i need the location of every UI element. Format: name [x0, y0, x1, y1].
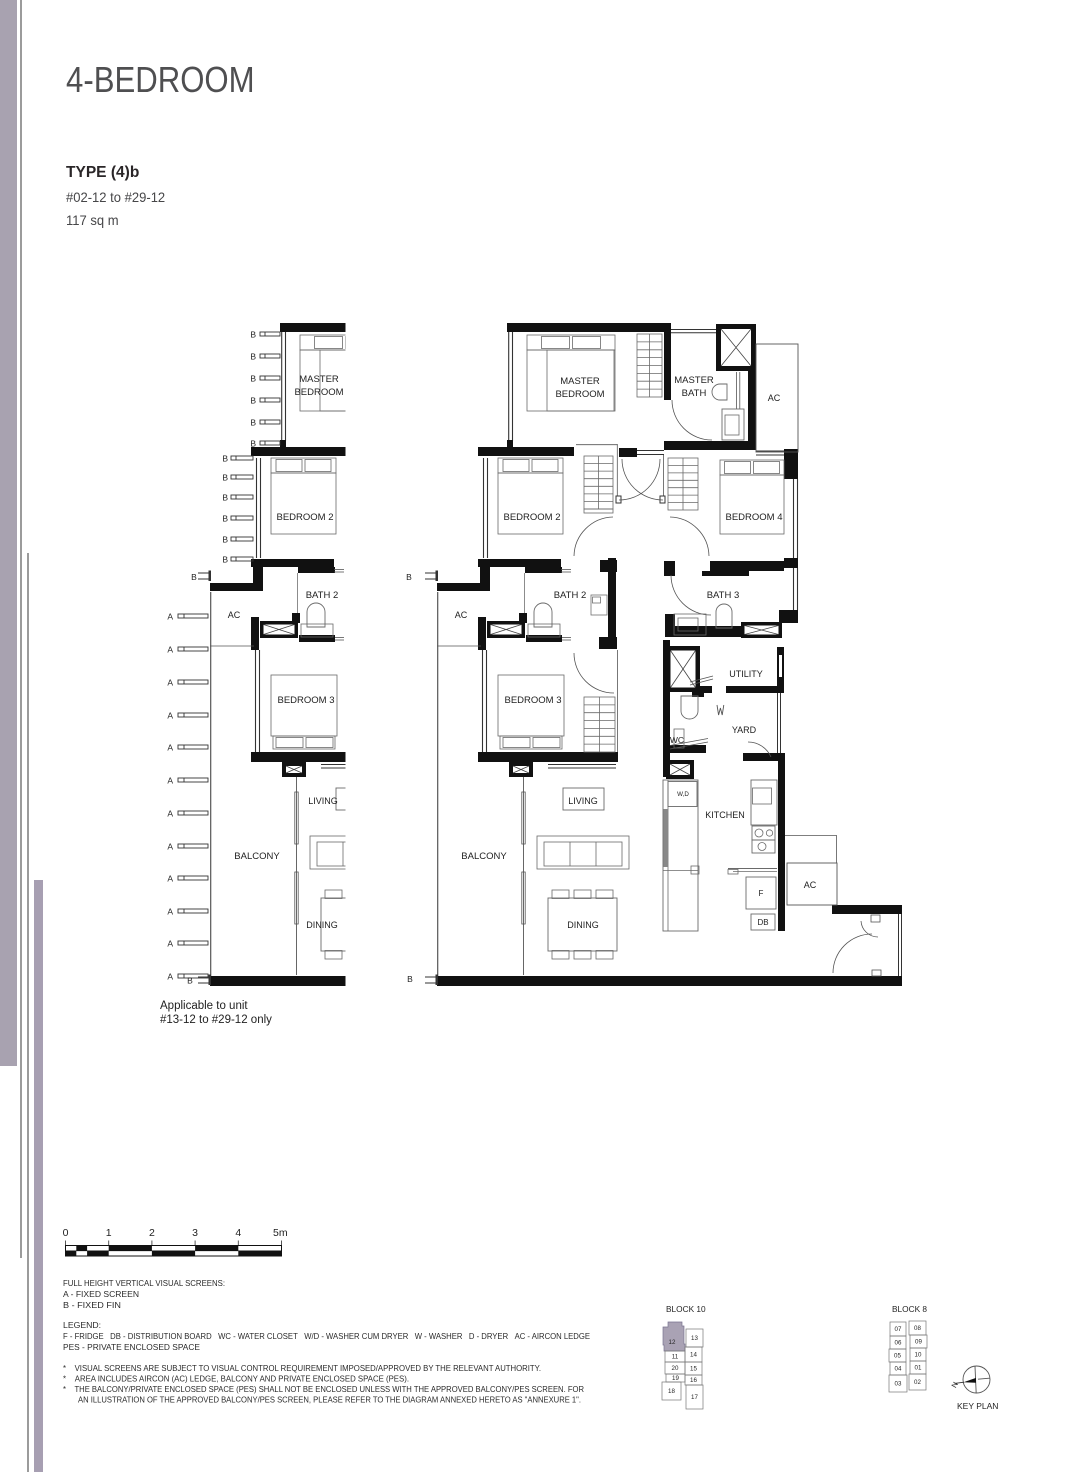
- svg-text:B: B: [222, 514, 228, 524]
- svg-text:B: B: [250, 330, 256, 340]
- svg-text:F - FRIDGE DB - DISTRIBUTION: F - FRIDGE DB - DISTRIBUTION BOARD WC - …: [63, 1331, 590, 1341]
- svg-text:* THE BALCONY/PRIVATE ENCLO: * THE BALCONY/PRIVATE ENCLOSED SPACE (PE…: [63, 1384, 584, 1394]
- svg-text:18: 18: [668, 1388, 675, 1395]
- svg-text:B: B: [222, 535, 228, 545]
- svg-text:A: A: [167, 776, 173, 786]
- svg-text:1: 1: [106, 1227, 112, 1239]
- svg-text:BLOCK 8: BLOCK 8: [892, 1304, 927, 1314]
- svg-text:2: 2: [149, 1227, 155, 1239]
- svg-text:FULL HEIGHT VERTICAL VISUAL SC: FULL HEIGHT VERTICAL VISUAL SCREENS:: [63, 1278, 225, 1288]
- svg-text:DINING: DINING: [567, 920, 599, 930]
- svg-text:BEDROOM: BEDROOM: [555, 389, 604, 400]
- svg-text:BLOCK 10: BLOCK 10: [666, 1304, 706, 1314]
- svg-text:A: A: [167, 874, 173, 884]
- svg-text:B: B: [187, 976, 193, 986]
- svg-text:LIVING: LIVING: [568, 796, 598, 806]
- svg-text:11: 11: [672, 1354, 679, 1361]
- svg-text:13: 13: [691, 1335, 698, 1342]
- svg-text:A - FIXED SCREEN: A - FIXED SCREEN: [63, 1289, 139, 1299]
- svg-text:A: A: [167, 678, 173, 688]
- svg-text:16: 16: [690, 1377, 697, 1384]
- svg-text:3: 3: [192, 1227, 198, 1239]
- svg-text:B: B: [407, 974, 413, 984]
- svg-text:14: 14: [690, 1352, 697, 1359]
- svg-text:A: A: [167, 645, 173, 655]
- svg-text:N: N: [949, 1380, 959, 1389]
- svg-text:B: B: [222, 454, 228, 464]
- svg-text:B: B: [250, 418, 256, 428]
- svg-text:5m: 5m: [273, 1227, 288, 1239]
- svg-text:B: B: [250, 374, 256, 384]
- svg-text:A: A: [167, 809, 173, 819]
- svg-text:MASTER: MASTER: [299, 374, 339, 385]
- svg-text:09: 09: [915, 1339, 922, 1346]
- svg-text:A: A: [167, 972, 173, 982]
- svg-text:12: 12: [669, 1339, 676, 1346]
- svg-text:* VISUAL SCREENS ARE SUBJEC: * VISUAL SCREENS ARE SUBJECT TO VISUAL C…: [63, 1363, 541, 1373]
- svg-text:02: 02: [914, 1379, 921, 1386]
- svg-text:B: B: [222, 473, 228, 483]
- svg-text:B: B: [222, 493, 228, 503]
- svg-text:B: B: [222, 555, 228, 565]
- svg-text:19: 19: [672, 1375, 679, 1382]
- svg-text:B: B: [250, 396, 256, 406]
- svg-text:07: 07: [895, 1326, 902, 1333]
- svg-text:B: B: [191, 572, 197, 582]
- svg-text:AN ILLUSTRATION OF THE APPROVE: AN ILLUSTRATION OF THE APPROVED BALCONY/…: [78, 1395, 581, 1405]
- svg-text:PES - PRIVATE ENCLOSED SPACE: PES - PRIVATE ENCLOSED SPACE: [63, 1342, 200, 1352]
- svg-text:DINING: DINING: [306, 920, 338, 930]
- svg-text:4: 4: [235, 1227, 241, 1239]
- svg-text:B - FIXED FIN: B - FIXED FIN: [63, 1300, 121, 1310]
- svg-text:BATH 2: BATH 2: [306, 590, 339, 601]
- svg-text:BEDROOM: BEDROOM: [294, 387, 343, 398]
- svg-text:A: A: [167, 842, 173, 852]
- svg-text:05: 05: [894, 1353, 901, 1360]
- svg-text:10: 10: [915, 1352, 922, 1359]
- svg-text:20: 20: [672, 1365, 679, 1372]
- svg-text:Applicable to unit: Applicable to unit: [160, 1000, 248, 1012]
- svg-text:01: 01: [915, 1365, 922, 1372]
- svg-text:* AREA INCLUDES AIRCON (AC): * AREA INCLUDES AIRCON (AC) LEDGE, BALCO…: [63, 1374, 409, 1384]
- svg-text:A: A: [167, 939, 173, 949]
- svg-text:KEY PLAN: KEY PLAN: [957, 1401, 998, 1411]
- svg-text:B: B: [250, 352, 256, 362]
- svg-text:04: 04: [895, 1366, 902, 1373]
- svg-text:06: 06: [895, 1340, 902, 1347]
- svg-text:17: 17: [691, 1394, 698, 1401]
- svg-text:MASTER: MASTER: [560, 376, 600, 387]
- svg-text:A: A: [167, 907, 173, 917]
- svg-text:B: B: [250, 439, 256, 449]
- svg-text:LIVING: LIVING: [308, 796, 338, 806]
- svg-text:B: B: [406, 572, 412, 582]
- svg-text:0: 0: [63, 1227, 69, 1239]
- svg-text:BATH 2: BATH 2: [554, 590, 587, 601]
- svg-text:A: A: [167, 743, 173, 753]
- svg-text:A: A: [167, 612, 173, 622]
- svg-text:08: 08: [914, 1325, 921, 1332]
- svg-text:A: A: [167, 711, 173, 721]
- svg-text:15: 15: [690, 1366, 697, 1373]
- svg-text:LEGEND:: LEGEND:: [63, 1320, 101, 1330]
- svg-text:#13-12 to #29-12 only: #13-12 to #29-12 only: [160, 1014, 272, 1026]
- svg-text:03: 03: [895, 1381, 902, 1388]
